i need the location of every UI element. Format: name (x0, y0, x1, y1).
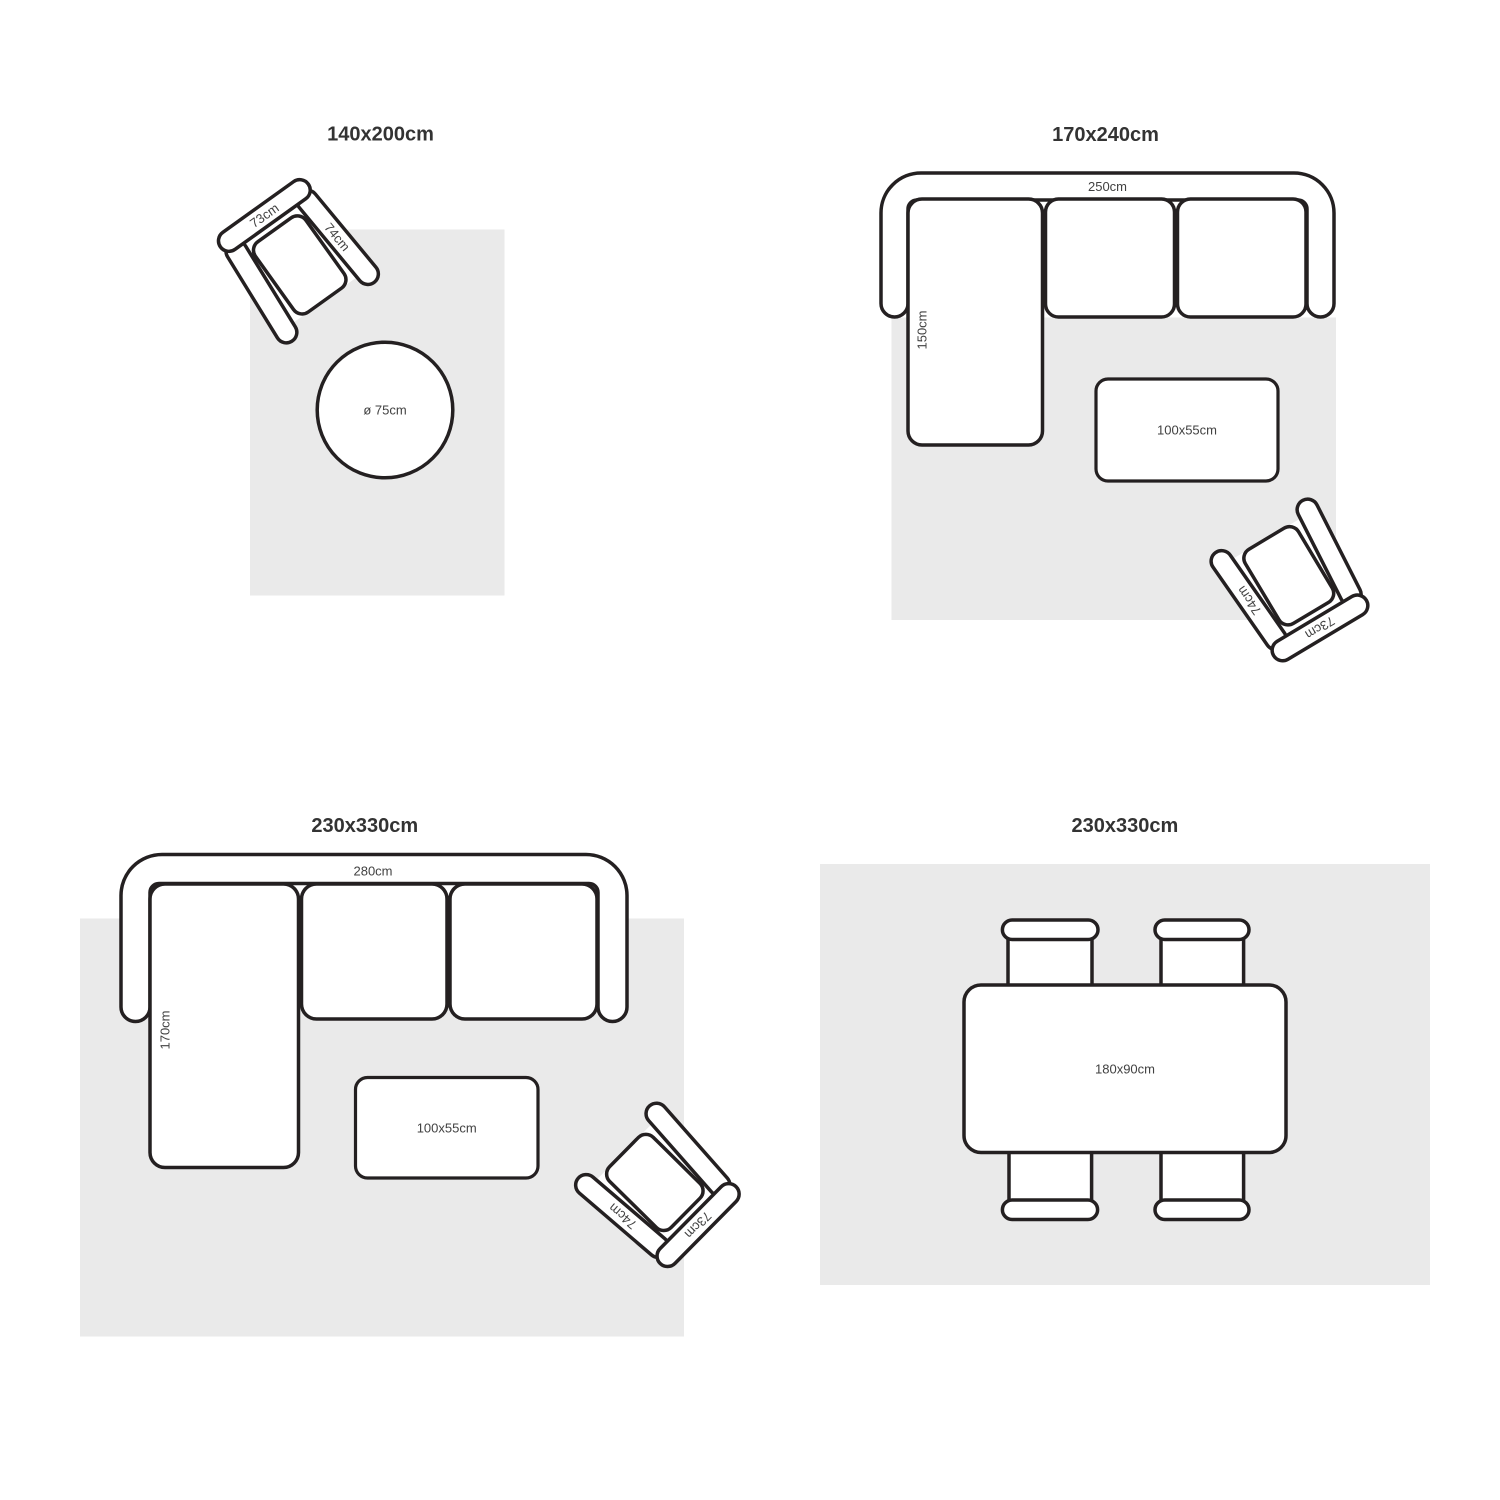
svg-text:250cm: 250cm (1088, 179, 1127, 194)
svg-text:280cm: 280cm (353, 864, 392, 879)
svg-text:230x330cm: 230x330cm (311, 815, 418, 837)
svg-text:170cm: 170cm (158, 1010, 173, 1049)
svg-text:150cm: 150cm (915, 310, 930, 349)
svg-text:100x55cm: 100x55cm (1157, 423, 1217, 438)
svg-text:170x240cm: 170x240cm (1052, 124, 1159, 146)
svg-text:100x55cm: 100x55cm (417, 1121, 477, 1136)
svg-text:180x90cm: 180x90cm (1095, 1062, 1155, 1077)
svg-text:ø 75cm: ø 75cm (363, 403, 406, 418)
svg-text:140x200cm: 140x200cm (327, 124, 434, 146)
svg-text:230x330cm: 230x330cm (1072, 815, 1179, 837)
